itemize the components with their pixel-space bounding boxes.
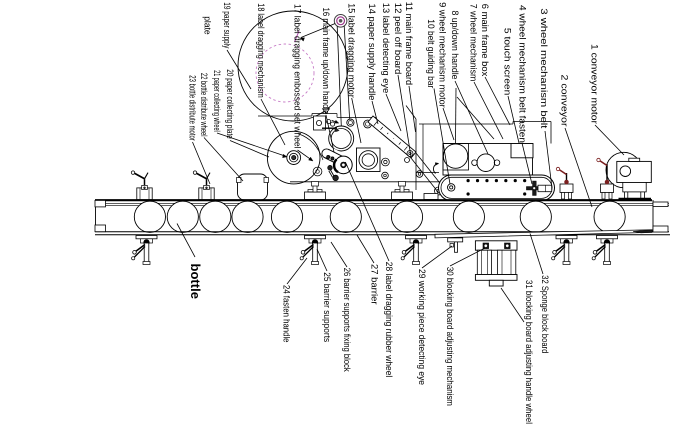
svg-text:28 label dragging rubber wheel: 28 label dragging rubber wheel bbox=[384, 262, 394, 378]
svg-text:22 bottle distribute wheel: 22 bottle distribute wheel bbox=[199, 73, 209, 137]
svg-text:26 barrier supports fixing blo: 26 barrier supports fixing block bbox=[342, 268, 352, 372]
svg-text:29 working piece detecting eye: 29 working piece detecting eye bbox=[417, 269, 427, 385]
svg-text:4 wheel mechanism belt fasten: 4 wheel mechanism belt fasten bbox=[517, 5, 527, 143]
svg-text:10 belt guiding bar: 10 belt guiding bar bbox=[426, 19, 436, 88]
svg-text:16 main frame up/down handle: 16 main frame up/down handle bbox=[321, 8, 331, 115]
svg-text:32 Sponge block board: 32 Sponge block board bbox=[540, 275, 550, 353]
svg-text:6 main frame box: 6 main frame box bbox=[480, 4, 490, 77]
svg-text:24 fasten handle: 24 fasten handle bbox=[282, 285, 292, 343]
svg-text:1 conveyor motor: 1 conveyor motor bbox=[590, 44, 600, 124]
svg-text:19 paper supply: 19 paper supply bbox=[222, 2, 232, 48]
svg-text:18 label dragging mechanism: 18 label dragging mechanism bbox=[256, 3, 266, 98]
svg-text:7 wheel mechanism: 7 wheel mechanism bbox=[468, 4, 478, 82]
svg-text:2 conveyor: 2 conveyor bbox=[560, 75, 570, 127]
svg-text:3 wheel mechanism belt: 3 wheel mechanism belt bbox=[539, 8, 549, 129]
svg-text:17 label dragging embossed set: 17 label dragging embossed set wheel bbox=[293, 4, 303, 149]
svg-text:30 blocking board adjusting me: 30 blocking board adjusting mechanism bbox=[445, 267, 455, 406]
svg-text:20 paper collecting plate: 20 paper collecting plate bbox=[225, 69, 235, 139]
svg-text:25 barrier supports: 25 barrier supports bbox=[322, 272, 332, 342]
svg-text:13 label detecting eye: 13 label detecting eye bbox=[381, 3, 391, 94]
svg-text:14 paper supply handle: 14 paper supply handle bbox=[367, 4, 377, 101]
svg-text:5 touch screen: 5 touch screen bbox=[503, 28, 513, 95]
svg-text:9 wheel mechanism motor: 9 wheel mechanism motor bbox=[438, 2, 448, 108]
svg-text:15 label dragging motor: 15 label dragging motor bbox=[347, 3, 357, 98]
svg-text:31 blocking board adjusting ha: 31 blocking board adjusting handle wheel bbox=[524, 280, 534, 424]
svg-text:12 peel off board: 12 peel off board bbox=[393, 3, 403, 75]
svg-text:plate: plate bbox=[203, 16, 213, 35]
svg-text:27 barrier: 27 barrier bbox=[370, 264, 380, 305]
svg-text:bottle: bottle bbox=[188, 264, 203, 300]
svg-text:23 bottle distribute motor: 23 bottle distribute motor bbox=[188, 75, 198, 141]
svg-text:21 paper collecting wheel: 21 paper collecting wheel bbox=[212, 70, 222, 132]
svg-text:8 up/down handle: 8 up/down handle bbox=[450, 11, 460, 80]
svg-text:11 main frame board: 11 main frame board bbox=[404, 2, 414, 86]
